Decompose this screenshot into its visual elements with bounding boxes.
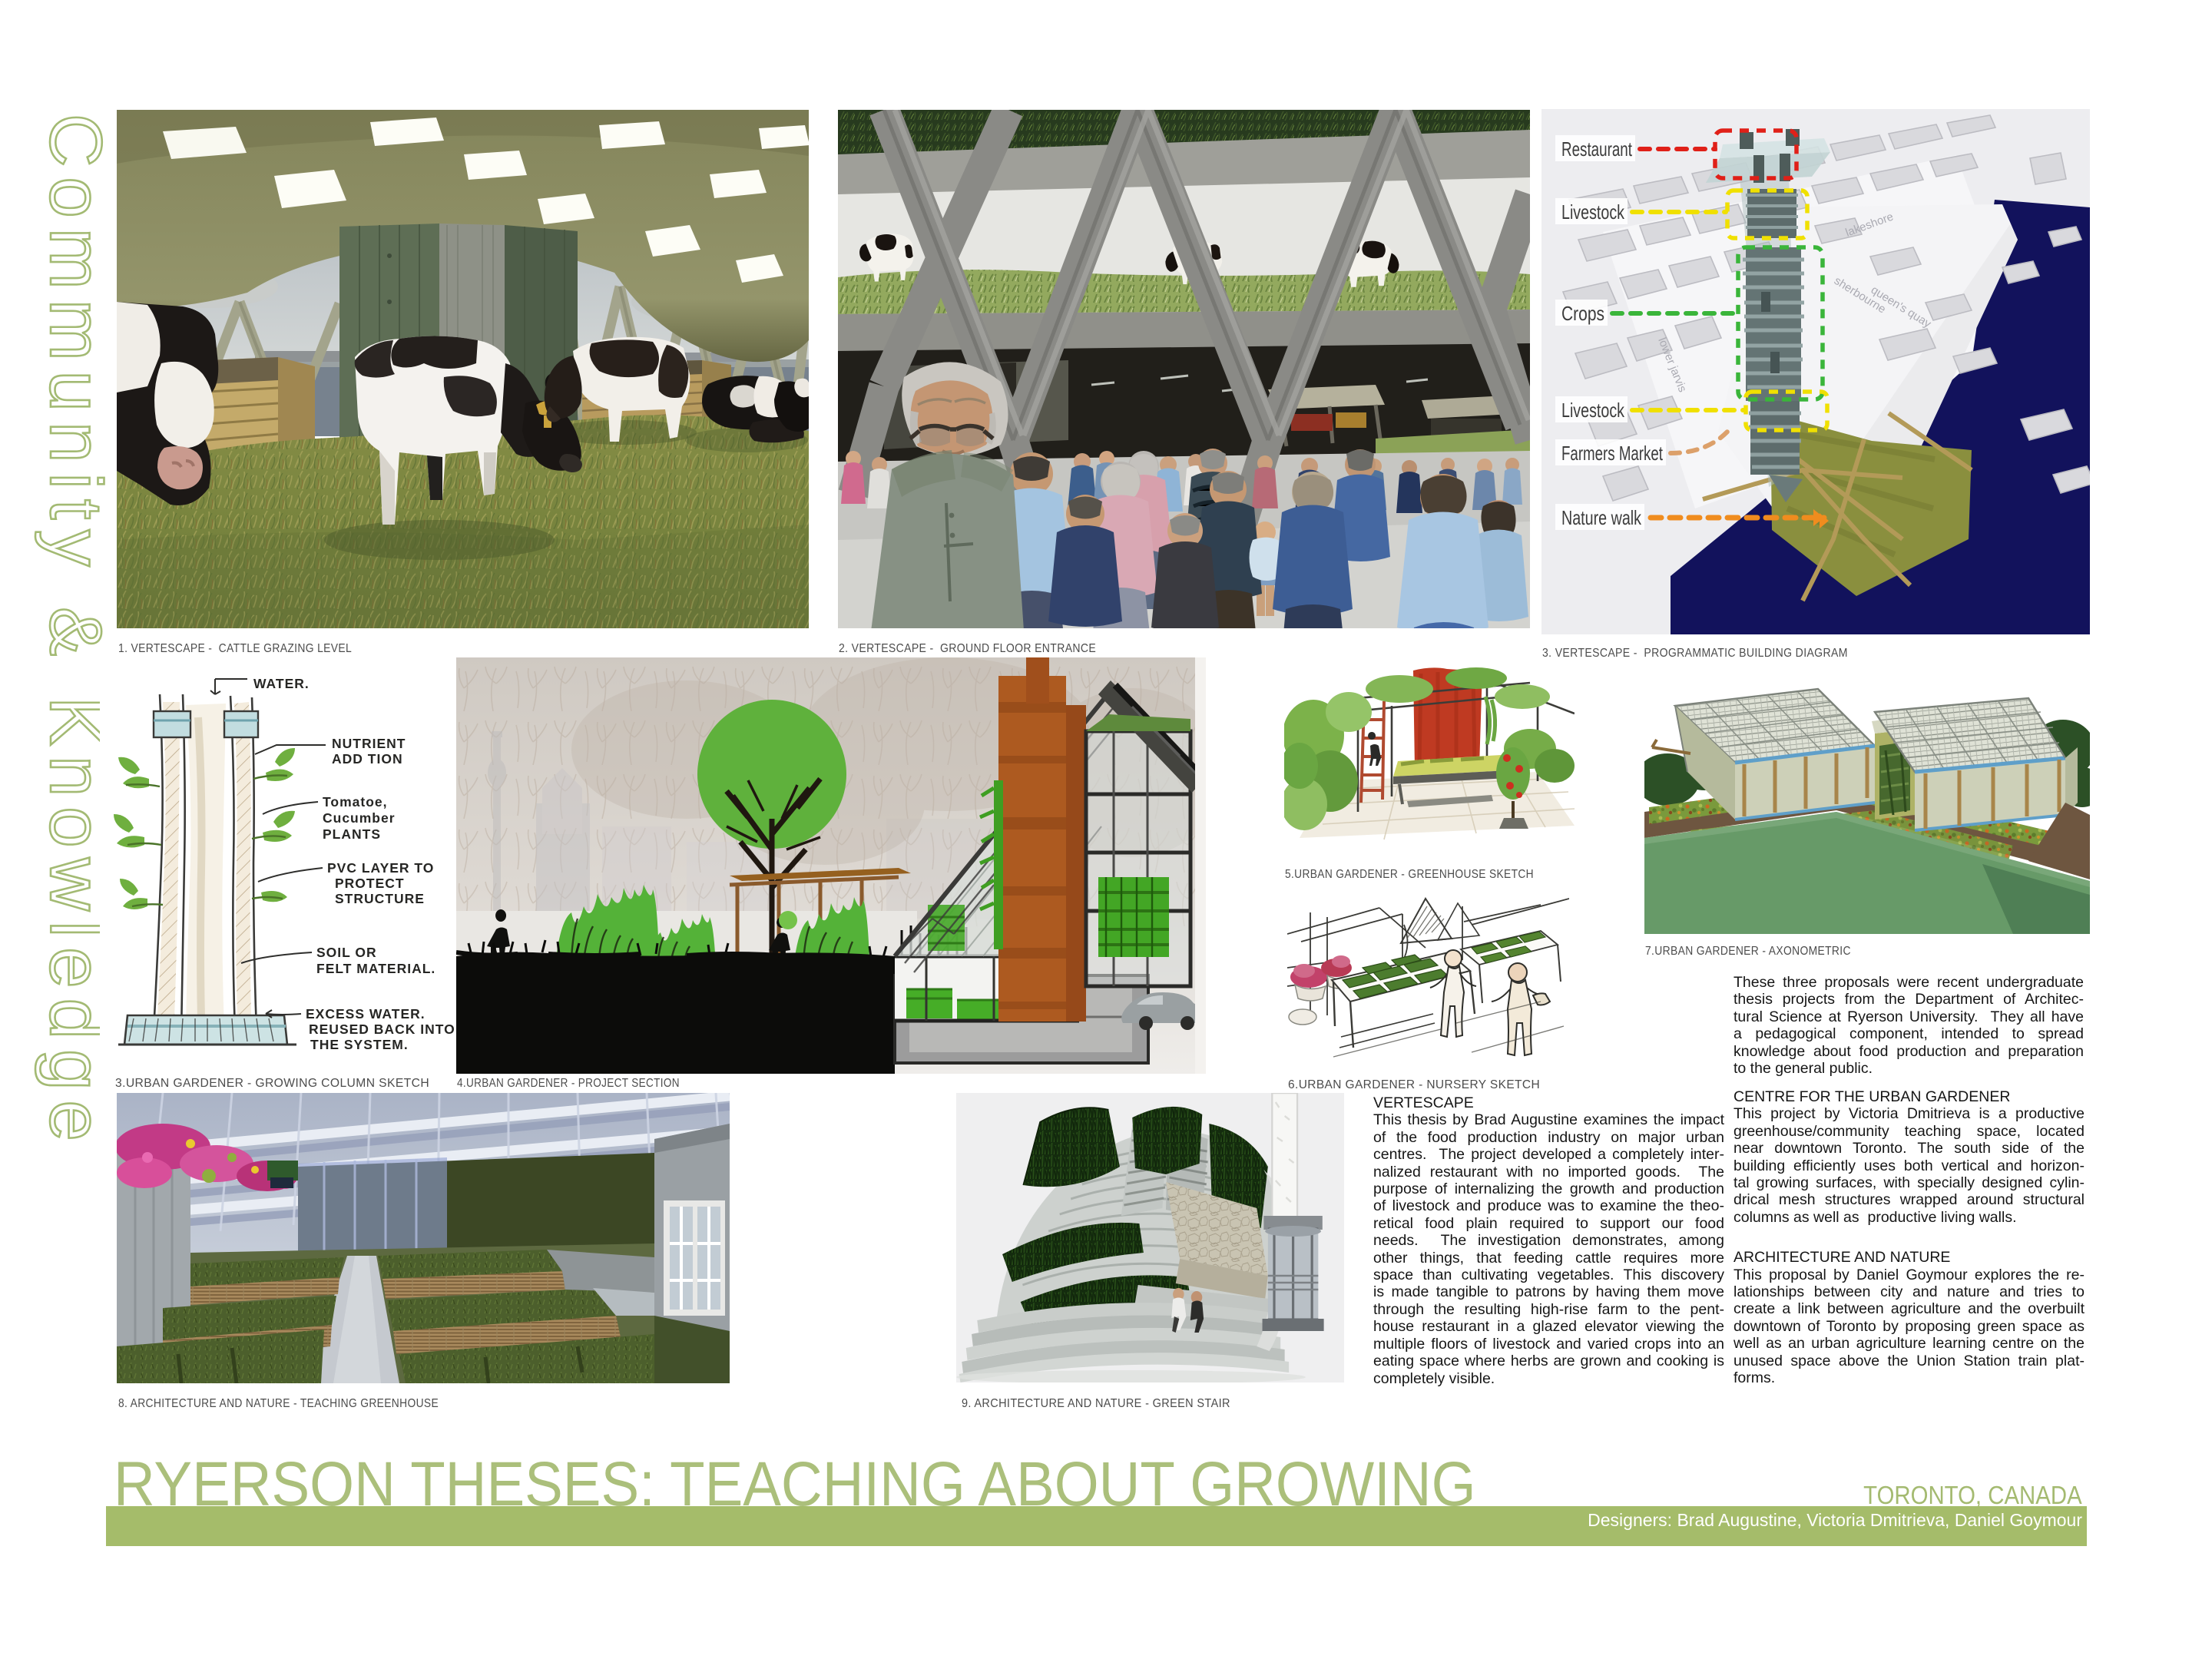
svg-text:WATER.: WATER.: [253, 676, 310, 691]
svg-text:NUTRIENT: NUTRIENT: [332, 736, 406, 751]
svg-text:THE SYSTEM.: THE SYSTEM.: [310, 1037, 409, 1052]
svg-text:SOIL OR: SOIL OR: [316, 945, 377, 960]
svg-text:Crops: Crops: [1561, 302, 1604, 325]
svg-text:Nature walk: Nature walk: [1561, 506, 1642, 529]
svg-text:Restaurant: Restaurant: [1561, 137, 1633, 161]
svg-text:EXCESS WATER.: EXCESS WATER.: [306, 1006, 426, 1022]
svg-text:ADD TION: ADD TION: [332, 751, 403, 767]
svg-text:Tomatoe,: Tomatoe,: [323, 794, 388, 810]
svg-text:FELT MATERIAL.: FELT MATERIAL.: [316, 961, 435, 976]
svg-text:Livestock: Livestock: [1561, 399, 1625, 422]
svg-text:REUSED BACK INTO: REUSED BACK INTO: [309, 1022, 455, 1037]
svg-text:Farmers Market: Farmers Market: [1561, 442, 1664, 465]
svg-text:Livestock: Livestock: [1561, 200, 1625, 224]
svg-text:PROTECT: PROTECT: [335, 876, 405, 891]
svg-text:PLANTS: PLANTS: [323, 826, 381, 842]
svg-text:STRUCTURE: STRUCTURE: [335, 891, 425, 906]
svg-text:Cucumber: Cucumber: [323, 810, 396, 826]
svg-text:PVC LAYER TO: PVC LAYER TO: [327, 860, 434, 876]
